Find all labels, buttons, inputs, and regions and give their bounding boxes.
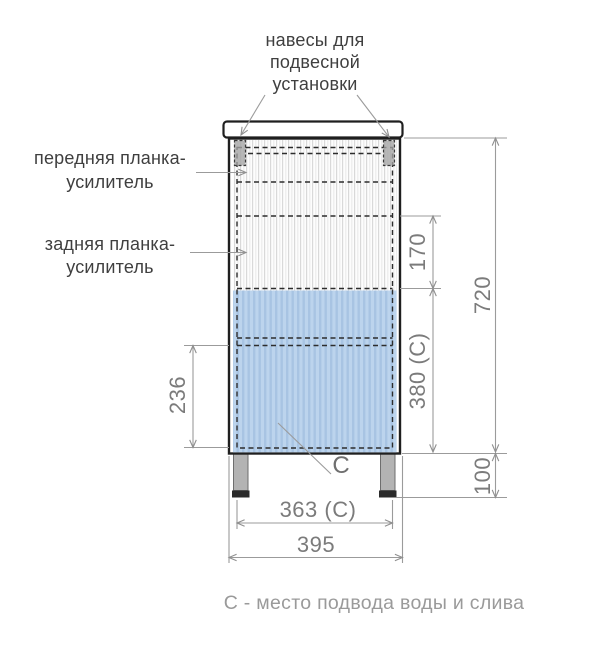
leg-right (379, 454, 397, 498)
rear-bar-label-line2: усилитель (66, 257, 154, 277)
hanger-left (235, 141, 246, 166)
dim-236-label: 236 (165, 376, 190, 414)
leg-right-cap (379, 491, 397, 498)
front-bar-label-line1: передняя планка- (34, 148, 186, 168)
facade-fluted-upper (233, 140, 397, 291)
c-marker: С (332, 452, 349, 479)
dim-100-label: 100 (470, 457, 495, 495)
leg-left (232, 454, 250, 498)
front-bar-label-line2: усилитель (66, 172, 154, 192)
rear-bar-label-line1: задняя планка- (45, 234, 175, 254)
dim-380-label: 380 (С) (405, 333, 430, 410)
service-zone-blue (233, 291, 397, 453)
caption: С - место подвода воды и слива (224, 592, 525, 614)
dim-395-label: 395 (297, 532, 335, 557)
dim-720-label: 720 (470, 276, 495, 314)
dim-363-label: 363 (С) (280, 497, 357, 522)
hangers-label-line3: установки (272, 74, 357, 94)
dim-170-label: 170 (405, 233, 430, 271)
cabinet-dimension-diagram: навесы для подвесной установки передняя … (0, 0, 606, 652)
hangers-label-line2: подвесной (270, 52, 360, 72)
cabinet-drawing (224, 122, 403, 498)
hanger-right (384, 141, 395, 166)
leg-left-cap (232, 491, 250, 498)
countertop (224, 122, 403, 138)
hangers-label-line1: навесы для (265, 30, 364, 50)
diagram-svg: навесы для подвесной установки передняя … (0, 0, 606, 652)
